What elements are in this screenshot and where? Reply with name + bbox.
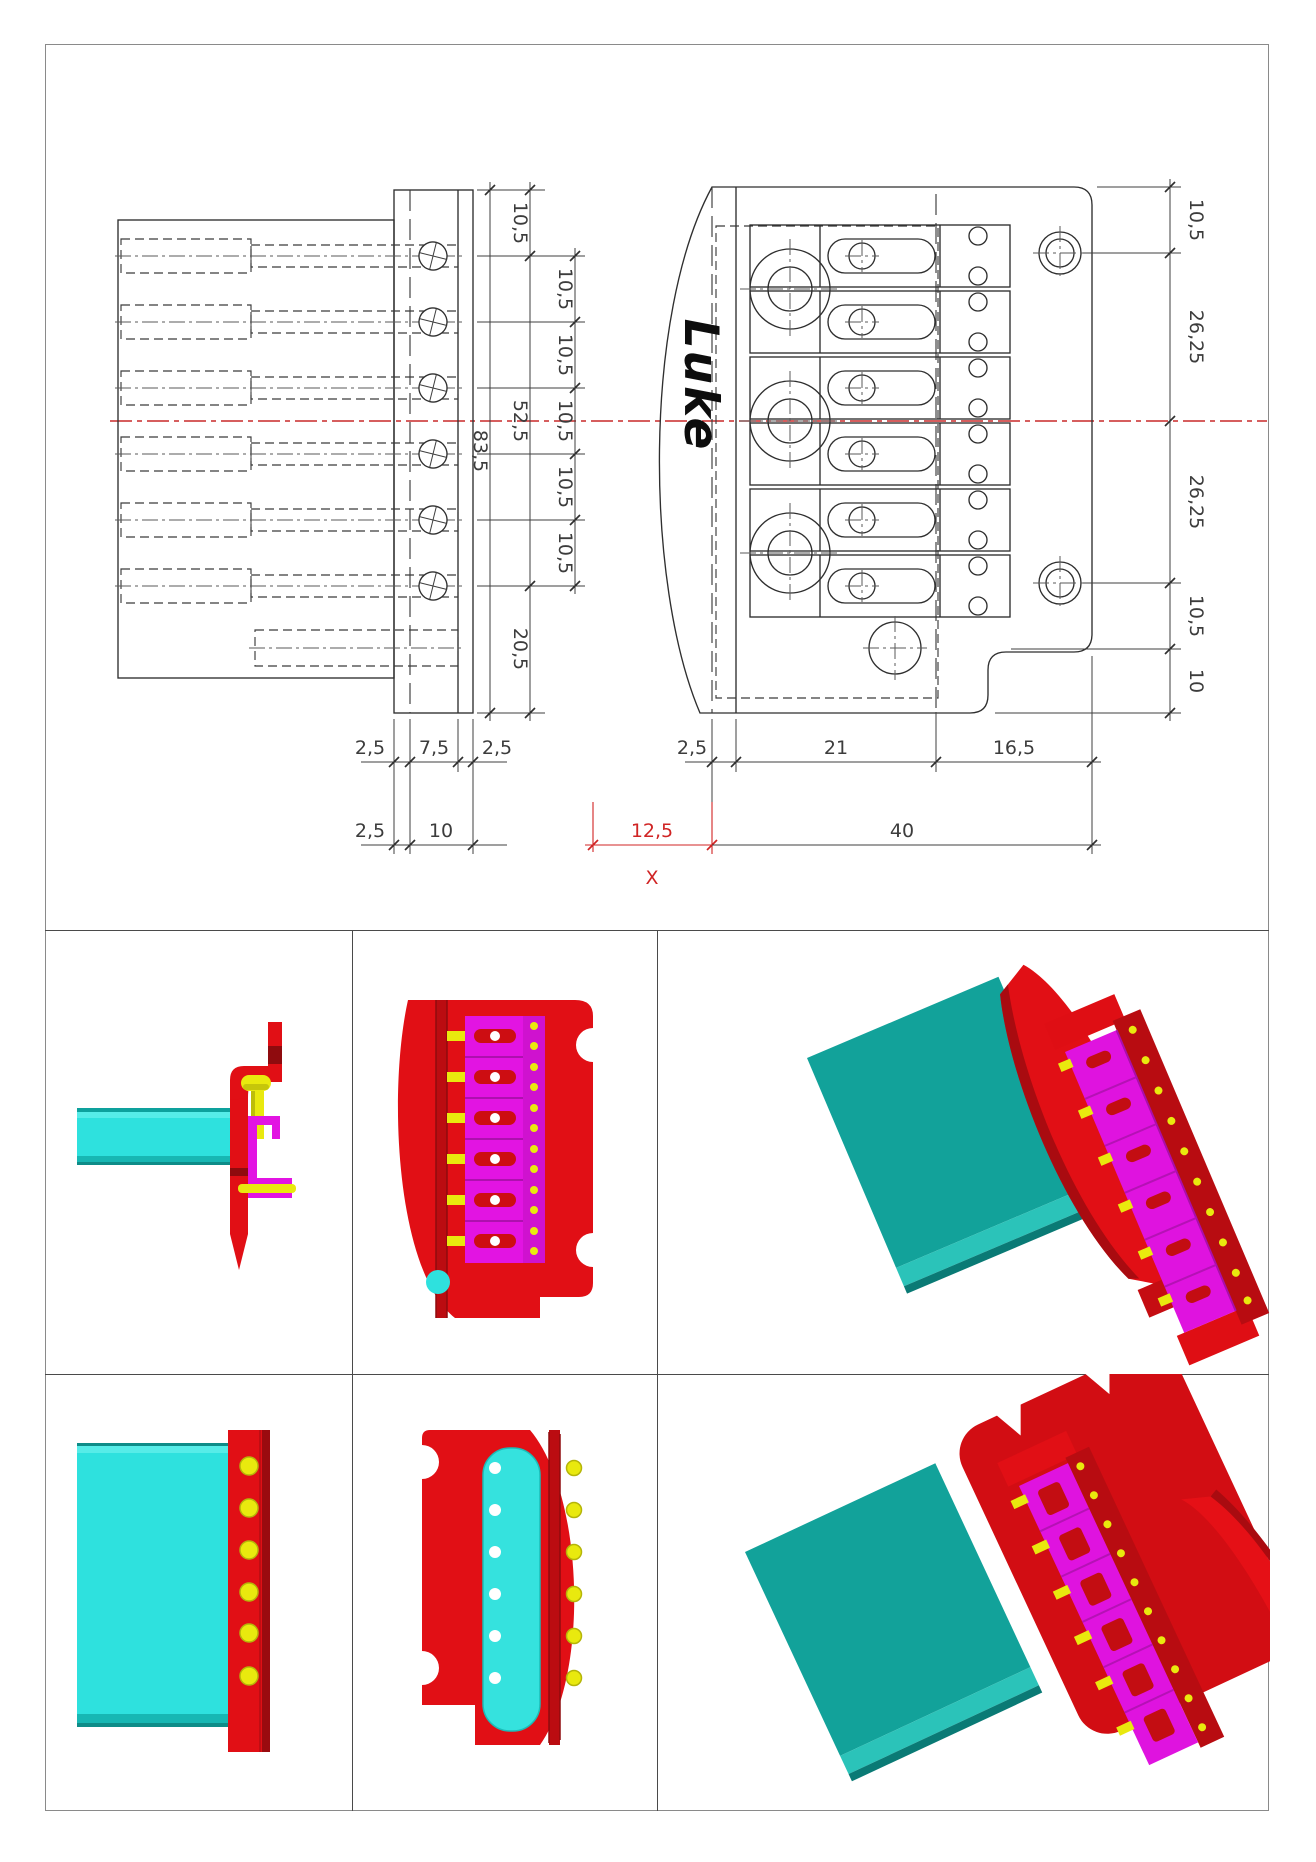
dim-plate-r1-1: 2,5 <box>355 737 385 759</box>
dim-right-r1-2: 21 <box>824 737 848 759</box>
dim-pitch-5: 10,5 <box>554 532 576 574</box>
panel-section-side <box>45 930 352 1374</box>
dim-pitch-4: 10,5 <box>554 466 576 508</box>
terminal-block-4 <box>750 423 1010 485</box>
dim-right-2: 26,25 <box>1185 310 1207 364</box>
terminal-block-5 <box>750 489 1010 551</box>
dim-total-width: 40 <box>890 820 914 842</box>
side-view <box>115 190 473 713</box>
screw-hole-3 <box>740 503 840 603</box>
logo-text: Luke <box>673 319 728 452</box>
front-view: Luke <box>659 187 1092 713</box>
cable-bar <box>77 1108 233 1165</box>
panel-render-iso-b <box>657 1374 1270 1812</box>
terminal-block-6 <box>750 555 1010 617</box>
terminal-block-2 <box>750 291 1010 353</box>
drawing-sheet: 83,5 10,5 52,5 20,5 10,5 10,5 10,5 10,5 … <box>0 0 1316 1862</box>
dim-pitch-2: 10,5 <box>554 334 576 376</box>
mounting-hole-bottom <box>1033 556 1087 610</box>
dim-total-height: 83,5 <box>469 430 491 472</box>
dim-pitch-1: 10,5 <box>554 268 576 310</box>
dim-plate-r1-2: 7,5 <box>419 737 449 759</box>
dim-offset-red: 12,5 <box>631 820 673 842</box>
mounting-hole-top <box>1033 226 1087 280</box>
dim-plate-r1-3: 2,5 <box>482 737 512 759</box>
dim-plate-top-gap: 10,5 <box>509 202 531 244</box>
pin-2 <box>115 305 465 339</box>
panel-render-front <box>352 930 657 1374</box>
panel-render-top <box>45 1374 352 1812</box>
pin-1 <box>115 239 465 273</box>
connector-magenta <box>465 1016 545 1263</box>
cyan-hole <box>426 1270 450 1294</box>
terminal-block-1 <box>750 225 1010 287</box>
cable-ribbon <box>77 1443 228 1727</box>
dim-right-r1-3: 16,5 <box>993 737 1035 759</box>
dimensions-right: 10,5 26,25 26,25 10,5 10 <box>995 179 1207 721</box>
orthographic-drawing: 83,5 10,5 52,5 20,5 10,5 10,5 10,5 10,5 … <box>45 44 1270 930</box>
panel-render-iso-a <box>657 930 1270 1374</box>
dim-right-r1-1: 2,5 <box>677 737 707 759</box>
dim-bottom-gap: 20,5 <box>509 628 531 670</box>
screw-hole-1 <box>740 239 840 339</box>
dim-pins-span: 52,5 <box>509 400 531 442</box>
pin-5 <box>115 503 465 537</box>
datum-label: X <box>645 867 658 889</box>
pin-7 <box>249 630 465 666</box>
dim-plate-r2-1: 2,5 <box>355 820 385 842</box>
dim-plate-r2-2: 10 <box>429 820 453 842</box>
pin-4 <box>115 437 465 471</box>
dimensions-bottom-left: 2,5 7,5 2,5 2,5 10 <box>355 719 512 854</box>
dim-right-5: 10 <box>1185 669 1207 693</box>
pin-3 <box>115 371 465 405</box>
pin-6 <box>115 569 465 603</box>
dimensions-bottom-right: 2,5 21 16,5 12,5 X 40 <box>585 656 1101 889</box>
screw-hole-2 <box>740 371 840 471</box>
terminal-block-3 <box>750 357 1010 419</box>
dim-right-3: 26,25 <box>1185 475 1207 529</box>
panel-render-back <box>352 1374 657 1812</box>
dim-right-1: 10,5 <box>1185 199 1207 241</box>
dim-right-4: 10,5 <box>1185 595 1207 637</box>
dim-pitch-3: 10,5 <box>554 400 576 442</box>
bottom-hole <box>863 616 927 680</box>
dimensions-middle: 83,5 10,5 52,5 20,5 10,5 10,5 10,5 10,5 … <box>469 182 585 721</box>
